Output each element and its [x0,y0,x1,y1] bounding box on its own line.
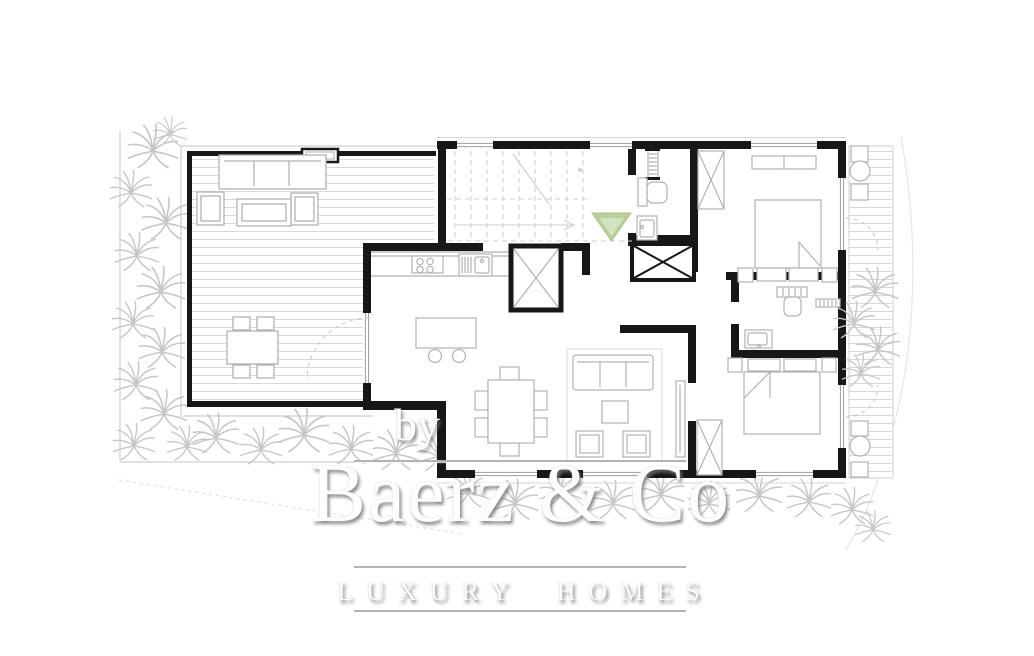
terrace-furniture-bottom [850,421,870,477]
dining-chair [475,418,488,437]
window [756,470,813,478]
dining-table [488,380,534,443]
armchair [623,431,650,457]
armchair [576,431,603,457]
hallway-closet [632,244,694,280]
sofa [573,355,653,390]
kitchen-storage-closet [511,246,561,310]
watermark-rule-top [354,460,686,462]
window [751,141,817,149]
bathroom-sink [745,330,772,348]
pillow [784,359,816,371]
coffee-table [602,401,628,423]
window [583,470,647,478]
radiator [816,299,840,307]
sliding-door [838,385,846,448]
floorplan-canvas: by Baerz & Co LUXURY HOMES [0,0,1034,656]
nightstand [728,358,742,372]
nightstand [822,268,837,282]
kitchen-sink [459,254,492,276]
window [457,141,493,149]
cooktop [412,256,443,273]
dining-chair [500,443,519,456]
deck-outdoor-sofa [219,155,326,189]
window [590,141,632,149]
window [475,470,537,478]
dining-chair [534,391,547,410]
terrace-furniture-top [850,146,870,200]
sliding-door [363,313,371,383]
wardrobe [697,420,722,475]
floorplan-drawing [0,0,1034,656]
dining-chair [475,391,488,410]
wardrobe [698,151,724,209]
dining-chair [534,418,547,437]
bathroom-sink [637,216,657,240]
nightstand [738,268,753,282]
toilet [638,178,667,206]
tv-sideboard [676,381,685,457]
watermark-rule-middle [354,566,686,568]
dining-chair [500,367,519,380]
deck-coffee-table [237,199,291,226]
pillow [757,268,786,281]
watermark-rule-bottom [354,610,686,612]
nightstand [822,358,836,372]
pillow [789,268,818,281]
pillow [748,359,780,371]
sliding-door [838,178,846,250]
